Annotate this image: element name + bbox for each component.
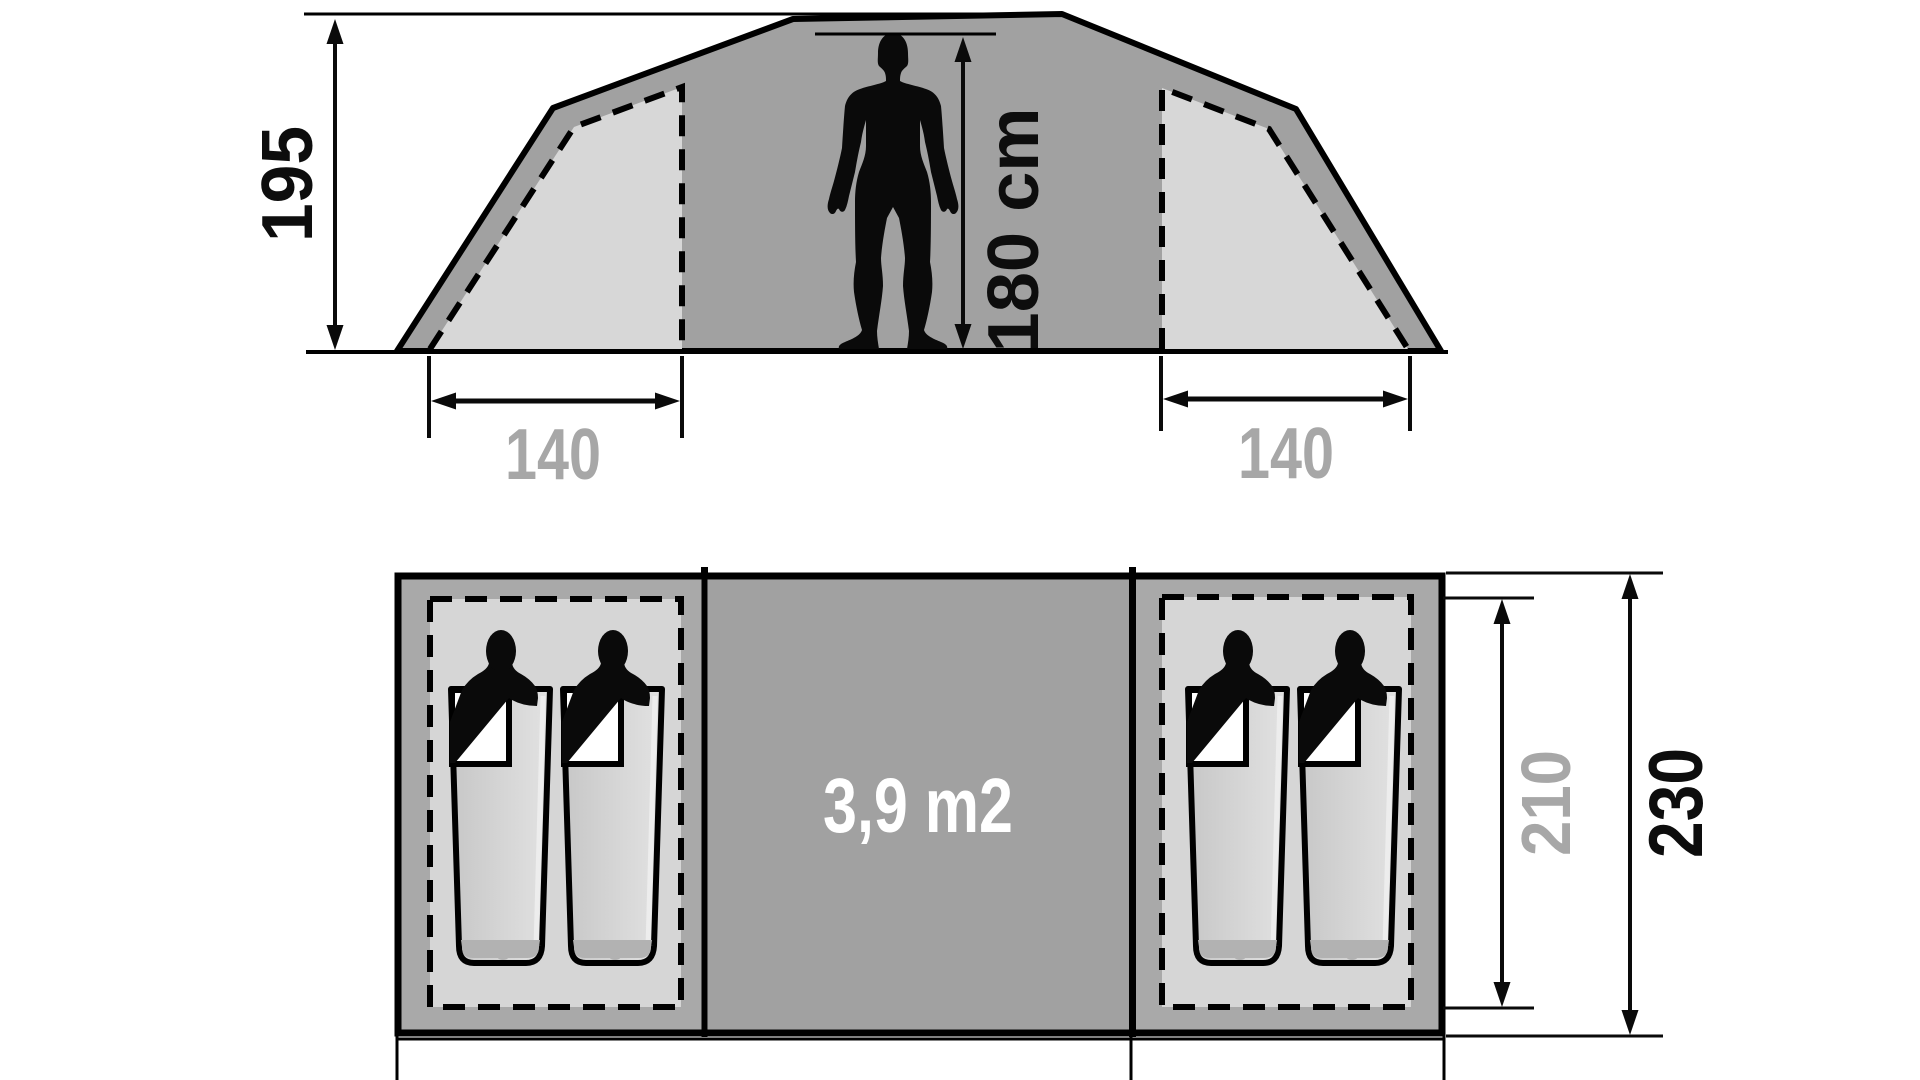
svg-text:3,9 m2: 3,9 m2	[823, 763, 1013, 849]
svg-text:210: 210	[1507, 750, 1585, 856]
svg-text:140: 140	[1238, 414, 1334, 494]
svg-text:230: 230	[1634, 748, 1719, 858]
svg-text:140: 140	[505, 415, 601, 495]
svg-text:180 cm: 180 cm	[974, 108, 1054, 353]
svg-text:195: 195	[248, 126, 328, 242]
